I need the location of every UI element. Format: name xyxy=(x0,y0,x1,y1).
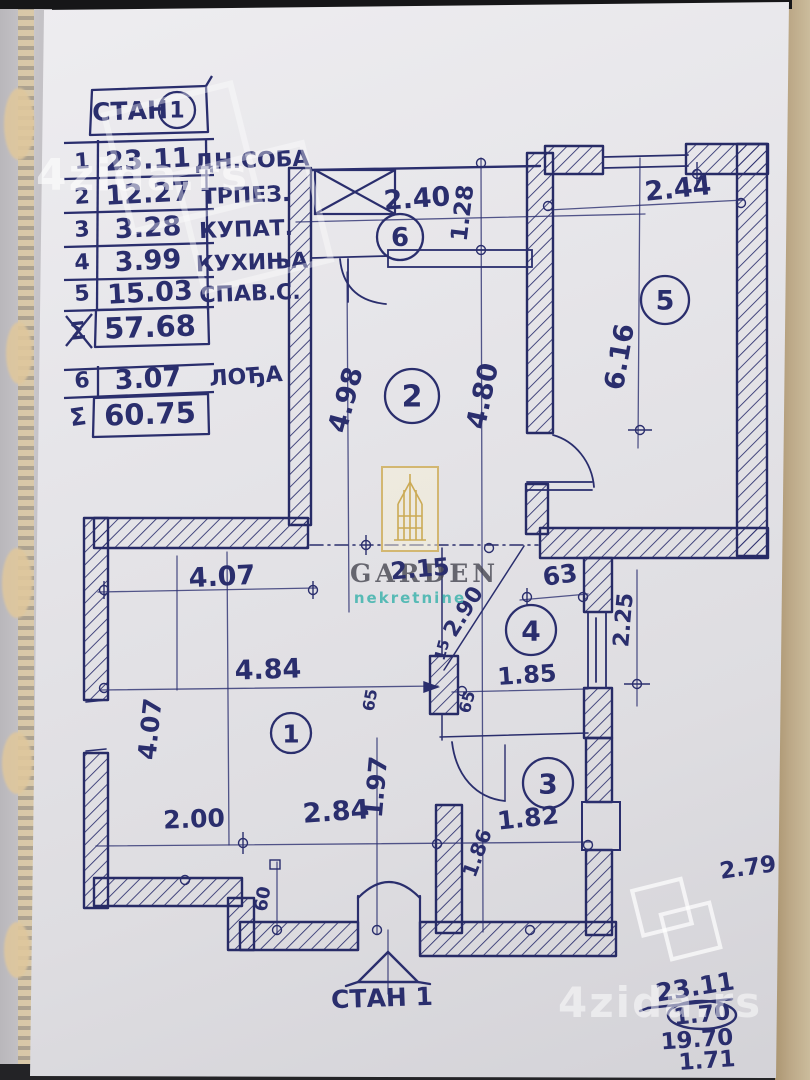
row-value: 3.28 xyxy=(114,211,182,245)
dim-label-65a: 65 xyxy=(359,687,382,712)
dim-label-200: 2.00 xyxy=(163,803,226,834)
dim-label-185: 1.85 xyxy=(496,659,557,691)
table-title-number: 1 xyxy=(169,99,184,124)
tick xyxy=(628,426,652,435)
room-number-6: 6 xyxy=(391,223,409,253)
dim-label-225: 2.25 xyxy=(609,592,639,648)
agency-subtitle: nekretnine xyxy=(350,589,470,607)
dim-label-60: 60 xyxy=(250,885,275,913)
room6-counter xyxy=(312,250,532,304)
room-number-2: 2 xyxy=(402,380,423,415)
room-number-1: 1 xyxy=(282,720,299,749)
row-value: 3.99 xyxy=(114,244,182,278)
dim-label-407h: 4.07 xyxy=(188,560,256,594)
row-value: 12.27 xyxy=(105,176,192,211)
tick-square xyxy=(270,860,280,869)
row-num: 6 xyxy=(73,368,90,394)
subtotal-symbol: Σ xyxy=(68,316,87,346)
window-room1 xyxy=(86,700,106,751)
agency-logo-watermark: GARDEN nekretnine xyxy=(350,466,470,616)
row-value: 3.07 xyxy=(114,362,182,396)
room-number-4: 4 xyxy=(521,615,540,648)
row-num: 2 xyxy=(73,184,90,210)
row-label: СПАВ.С. xyxy=(199,280,301,309)
row-value: 23.11 xyxy=(105,142,192,177)
table-title: СТАН xyxy=(92,95,169,127)
row-num: 5 xyxy=(73,281,90,307)
row-value: 15.03 xyxy=(107,275,194,310)
row-label: ТРПЕЗ. xyxy=(201,182,290,210)
skyscraper-icon xyxy=(383,468,437,550)
tick xyxy=(309,581,318,599)
subtotal-value: 57.68 xyxy=(104,308,197,345)
tick xyxy=(523,588,532,606)
door-room5 xyxy=(527,435,594,490)
room-number-5: 5 xyxy=(656,286,675,317)
row-num: 1 xyxy=(73,149,90,175)
photographed-floor-plan: СТАН 1 1 23.11 ДН.СОБА 2 12.27 ТРПЕЗ. 3 … xyxy=(0,0,810,1080)
entrance-door-arch xyxy=(358,882,420,950)
dim-label-284: 2.84 xyxy=(302,794,371,830)
row-label: КУХИЊА xyxy=(195,249,308,278)
calc-extra: 1.71 xyxy=(678,1046,736,1076)
row-label: ДН.СОБА xyxy=(194,147,310,176)
shaft-niche xyxy=(582,802,620,850)
window-room5 xyxy=(603,155,688,168)
row-num: 3 xyxy=(73,217,90,243)
row-label: КУПАТ. xyxy=(199,216,294,244)
dim-label-215: 2.15 xyxy=(389,552,450,585)
room-number-3: 3 xyxy=(538,768,557,801)
row-num: 4 xyxy=(73,250,90,276)
row-label: ЛОЂА xyxy=(209,362,284,392)
dim-label-240: 2.40 xyxy=(383,181,452,217)
entrance-label: СТАН 1 xyxy=(331,982,434,1015)
tick xyxy=(239,832,248,854)
room-number-circles xyxy=(271,214,689,808)
agency-logo-box xyxy=(381,466,439,552)
dim-label-484: 4.84 xyxy=(234,653,302,686)
door-room4 xyxy=(588,612,606,688)
dim-label-63: 63 xyxy=(541,558,579,592)
total-value: 60.75 xyxy=(104,395,197,432)
